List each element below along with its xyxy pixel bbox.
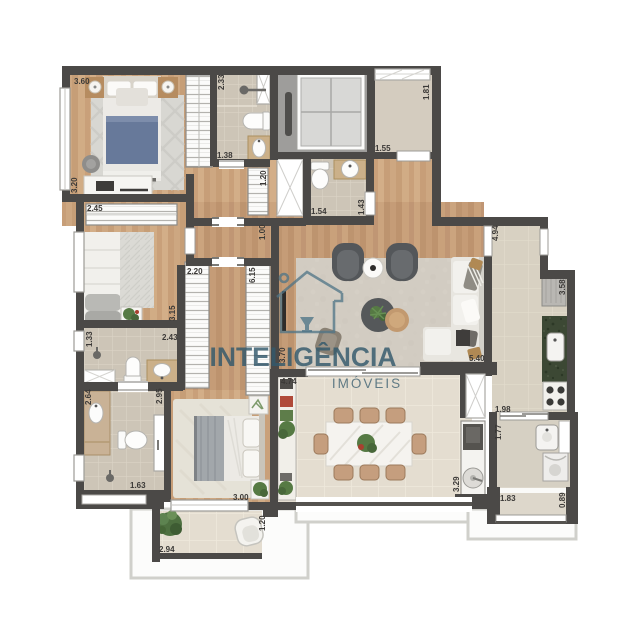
svg-text:1.20: 1.20: [259, 170, 268, 186]
svg-text:1.00: 1.00: [258, 224, 267, 240]
svg-text:2.94: 2.94: [159, 545, 175, 554]
svg-text:1.63: 1.63: [130, 481, 146, 490]
svg-text:1.54: 1.54: [311, 207, 327, 216]
svg-text:3.58: 3.58: [558, 279, 567, 295]
svg-text:1.83: 1.83: [500, 494, 516, 503]
svg-text:1.43: 1.43: [357, 199, 366, 215]
svg-text:2.64: 2.64: [84, 389, 93, 405]
svg-text:2.43: 2.43: [162, 333, 178, 342]
svg-text:1.33: 1.33: [85, 331, 94, 347]
svg-text:1.20: 1.20: [258, 515, 267, 531]
svg-text:4.94: 4.94: [491, 225, 500, 241]
svg-text:3.60: 3.60: [74, 77, 90, 86]
svg-text:3.29: 3.29: [452, 476, 461, 492]
svg-text:1.55: 1.55: [375, 144, 391, 153]
svg-text:3.00: 3.00: [233, 493, 249, 502]
svg-text:1.77: 1.77: [494, 424, 503, 440]
svg-text:5.40: 5.40: [469, 354, 485, 363]
svg-text:4.74: 4.74: [281, 377, 297, 386]
svg-text:3.70: 3.70: [278, 347, 287, 363]
svg-text:3.20: 3.20: [70, 177, 79, 193]
svg-text:1.98: 1.98: [495, 405, 511, 414]
svg-text:3.15: 3.15: [168, 305, 177, 321]
svg-text:2.33: 2.33: [217, 74, 226, 90]
svg-text:INTELIGÊNCIA: INTELIGÊNCIA: [210, 342, 397, 372]
svg-text:1.81: 1.81: [422, 84, 431, 100]
svg-text:0.89: 0.89: [558, 492, 567, 508]
svg-text:1.38: 1.38: [217, 151, 233, 160]
svg-text:2.45: 2.45: [87, 204, 103, 213]
svg-text:2.95: 2.95: [155, 388, 164, 404]
svg-text:2.20: 2.20: [187, 267, 203, 276]
svg-text:IMÓVEIS: IMÓVEIS: [332, 376, 402, 391]
svg-text:6.15: 6.15: [248, 267, 257, 283]
